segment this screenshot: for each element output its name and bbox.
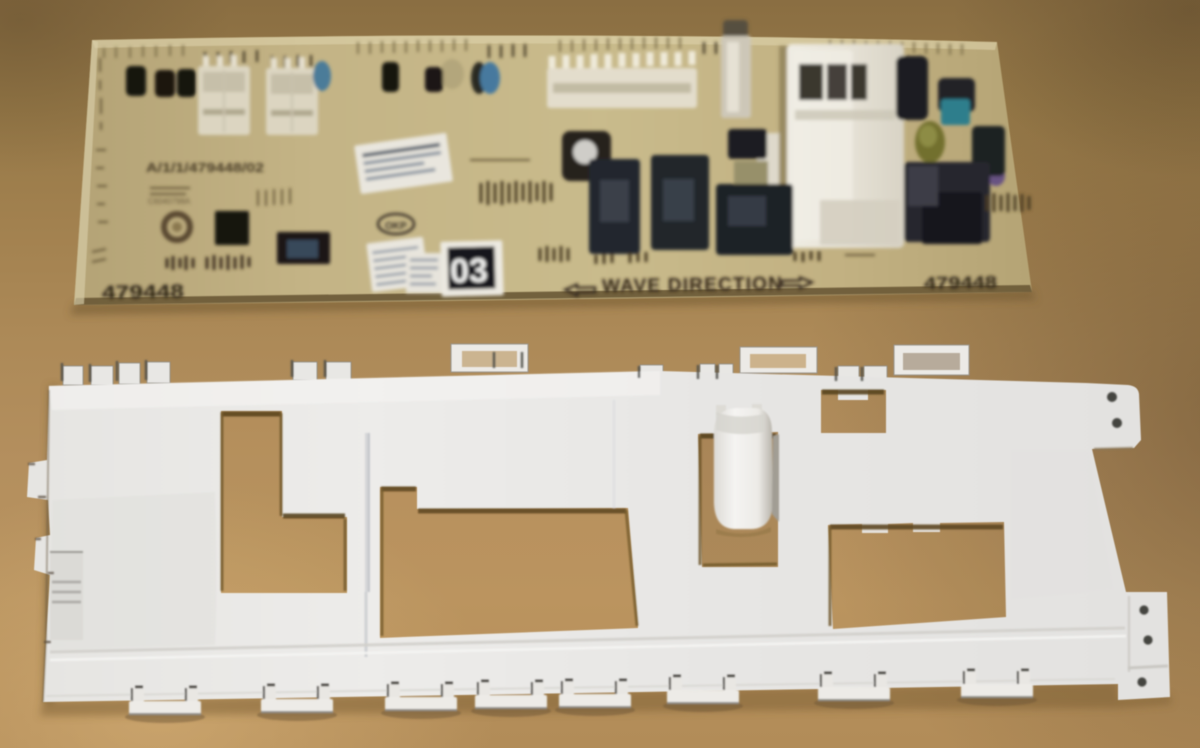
svg-text:479448: 479448 <box>102 282 184 304</box>
svg-text:OKP: OKP <box>385 221 407 232</box>
svg-text:A/1/1/479448/02: A/1/1/479448/02 <box>146 160 264 175</box>
svg-text:03: 03 <box>450 252 489 291</box>
svg-text:C6040798A: C6040798A <box>148 197 191 206</box>
svg-text:479448: 479448 <box>924 273 997 293</box>
svg-text:WAVE DIRECTION: WAVE DIRECTION <box>602 274 783 298</box>
